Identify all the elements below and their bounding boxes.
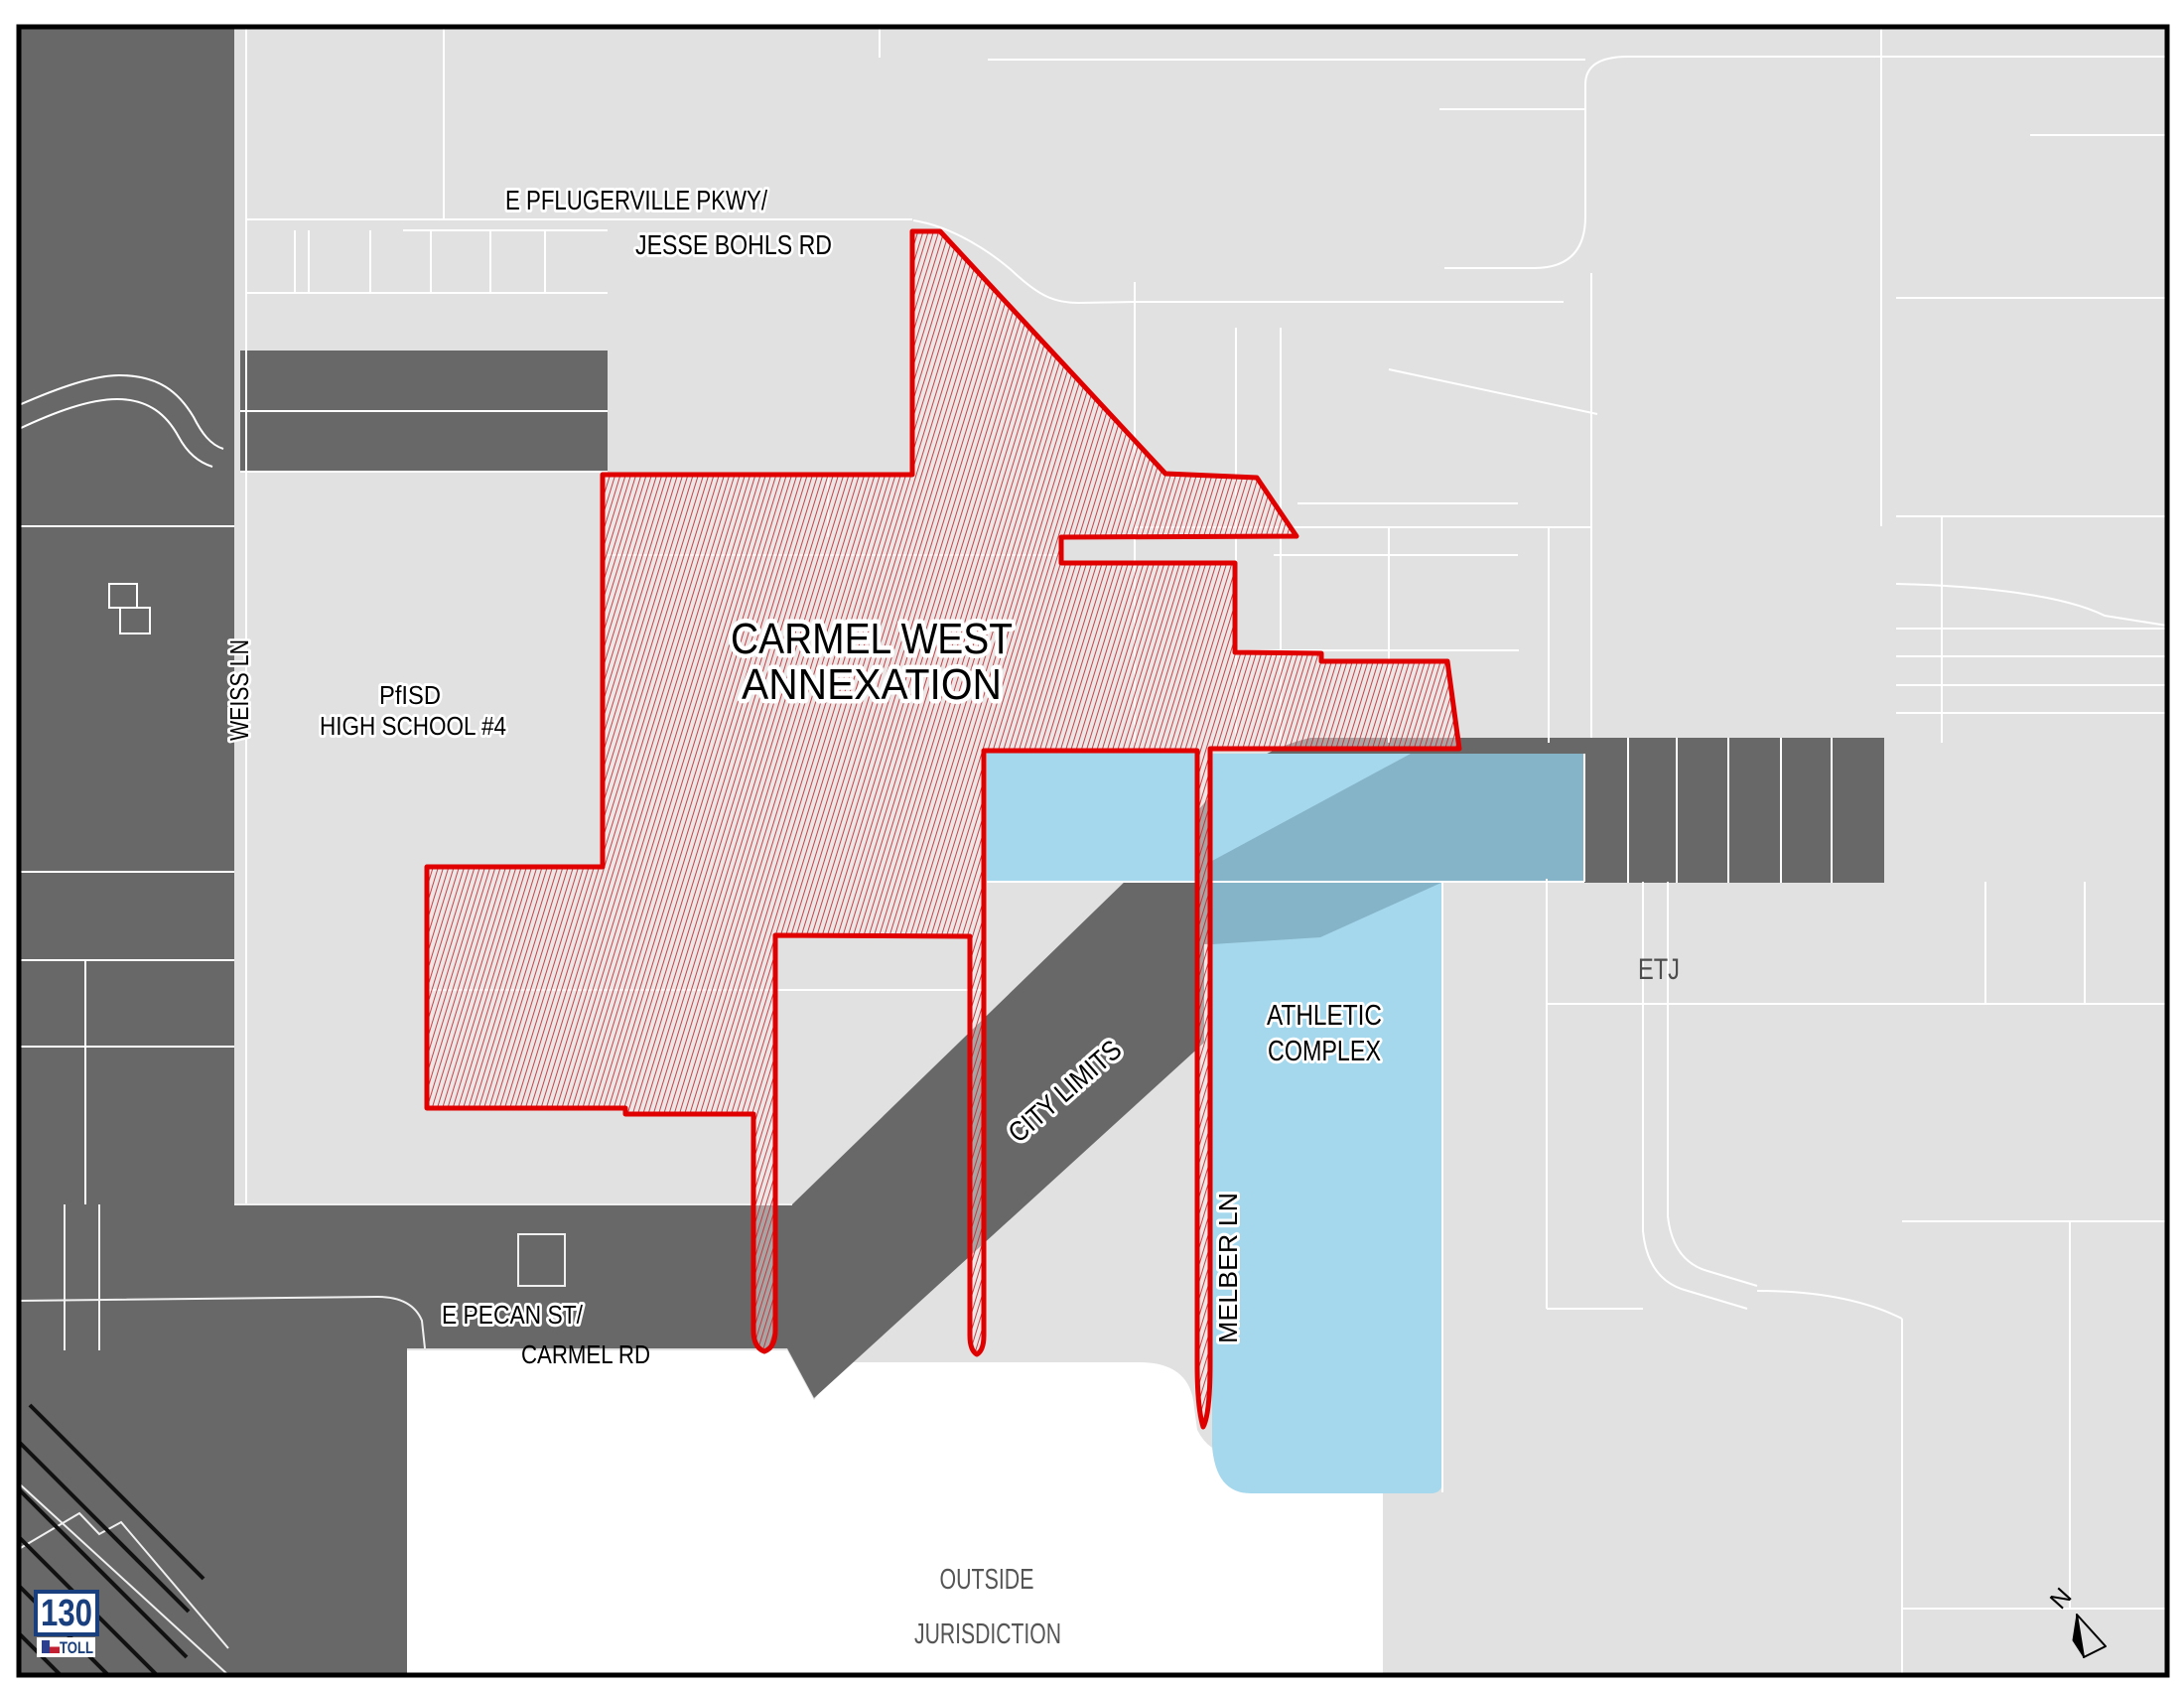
svg-text:ATHLETIC: ATHLETIC bbox=[1267, 1000, 1382, 1032]
svg-text:E PECAN ST/: E PECAN ST/ bbox=[442, 1300, 584, 1330]
svg-text:OUTSIDE: OUTSIDE bbox=[940, 1564, 1034, 1596]
svg-text:TOLL: TOLL bbox=[60, 1638, 93, 1657]
svg-text:E PFLUGERVILLE PKWY/: E PFLUGERVILLE PKWY/ bbox=[505, 185, 767, 215]
svg-text:PfISD: PfISD bbox=[379, 680, 441, 710]
svg-text:WEISS LN: WEISS LN bbox=[224, 639, 254, 741]
svg-text:MELBER LN: MELBER LN bbox=[1213, 1193, 1243, 1343]
svg-text:ANNEXATION: ANNEXATION bbox=[742, 660, 1002, 709]
svg-text:130: 130 bbox=[41, 1593, 92, 1634]
svg-text:CARMEL RD: CARMEL RD bbox=[521, 1339, 650, 1369]
svg-text:CARMEL WEST: CARMEL WEST bbox=[731, 615, 1013, 663]
svg-text:HIGH SCHOOL #4: HIGH SCHOOL #4 bbox=[320, 711, 506, 741]
svg-text:COMPLEX: COMPLEX bbox=[1268, 1036, 1381, 1067]
svg-text:JESSE BOHLS RD: JESSE BOHLS RD bbox=[635, 229, 832, 260]
svg-text:JURISDICTION: JURISDICTION bbox=[914, 1618, 1061, 1650]
svg-text:ETJ: ETJ bbox=[1638, 953, 1680, 986]
